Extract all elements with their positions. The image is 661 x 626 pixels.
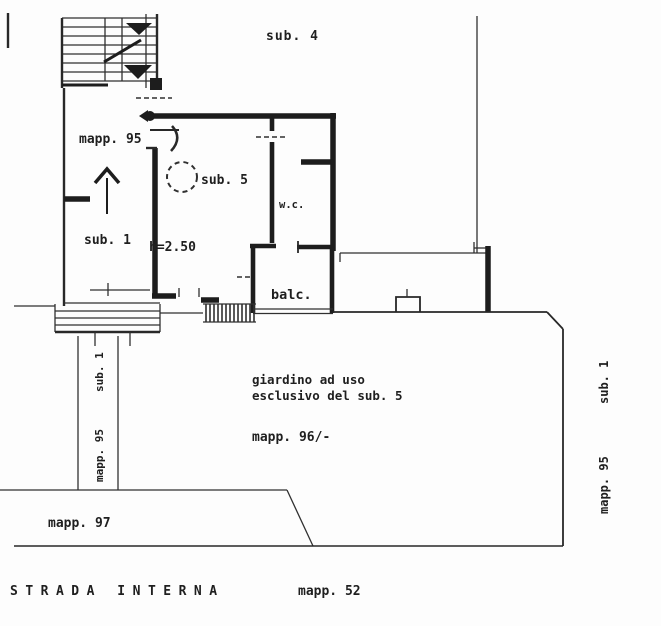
- label-garden-line2: esclusivo del sub. 5: [252, 388, 403, 403]
- staircase: [8, 13, 162, 90]
- label-mapp-97: mapp. 97: [48, 516, 111, 531]
- label-right-margin-mapp: mapp. 95: [597, 456, 611, 514]
- stair-direction-arrow-up: [126, 23, 152, 35]
- label-balc: balc.: [271, 287, 312, 303]
- label-mapp-95-door: mapp. 95: [79, 132, 142, 147]
- label-mapp-52: mapp. 52: [298, 584, 361, 599]
- label-garden-mapp: mapp. 96/-: [252, 430, 330, 445]
- label-sub-5: sub. 5: [201, 173, 248, 188]
- label-wc: w.c.: [279, 199, 304, 211]
- garden-pillar: [396, 297, 420, 312]
- entrance-steps: [55, 304, 160, 346]
- label-sub-4: sub. 4: [266, 29, 319, 44]
- label-right-margin-sub: sub. 1: [597, 361, 611, 404]
- floor-plan-drawing: sub. 4 sub. 1: [0, 0, 661, 626]
- reference-circle: [167, 162, 197, 192]
- label-strada-interna: STRADA INTERNA: [10, 584, 225, 599]
- sub5-unit: mapp. 95 sub. 5 h=2.50 w.c.: [79, 98, 336, 300]
- right-margin: mapp. 95 sub. 1: [597, 361, 611, 514]
- sub1-building: sub. 1: [14, 88, 160, 346]
- label-garden-line1: giardino ad uso: [252, 372, 365, 387]
- road-area: mapp. 97 STRADA INTERNA mapp. 52: [0, 490, 563, 599]
- balcony: balc.: [237, 241, 333, 314]
- garden-steps: [160, 304, 256, 322]
- label-height: h=2.50: [149, 240, 196, 255]
- upper-building: sub. 4: [266, 16, 477, 253]
- left-corridor: mapp. 95 sub. 1: [78, 336, 118, 490]
- label-left-margin-sub: sub. 1: [93, 352, 106, 392]
- label-sub-1: sub. 1: [84, 233, 131, 248]
- label-left-margin-mapp: mapp. 95: [93, 429, 106, 482]
- cadastral-floor-plan-page: sub. 4 sub. 1: [0, 0, 661, 626]
